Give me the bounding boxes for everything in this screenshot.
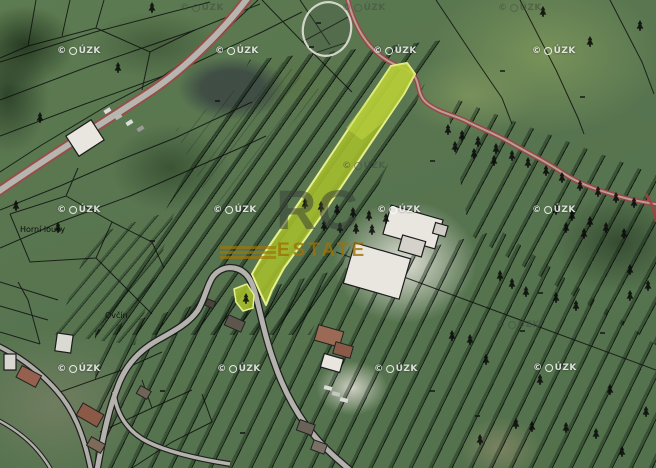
- parcel-boundary-lines: [0, 0, 656, 468]
- road-upper-left: [0, 0, 252, 196]
- parcel-number-marks: [150, 22, 605, 434]
- road-serpentine: [96, 268, 354, 468]
- cadastral-aerial-map: ©ÚZK ©ÚZK ©ÚZK ©ÚZK ©ÚZK ©ÚZK ©ÚZK ©ÚZK …: [0, 0, 656, 468]
- buildings-white: [4, 120, 448, 373]
- cadastral-vector-layer: [0, 0, 656, 468]
